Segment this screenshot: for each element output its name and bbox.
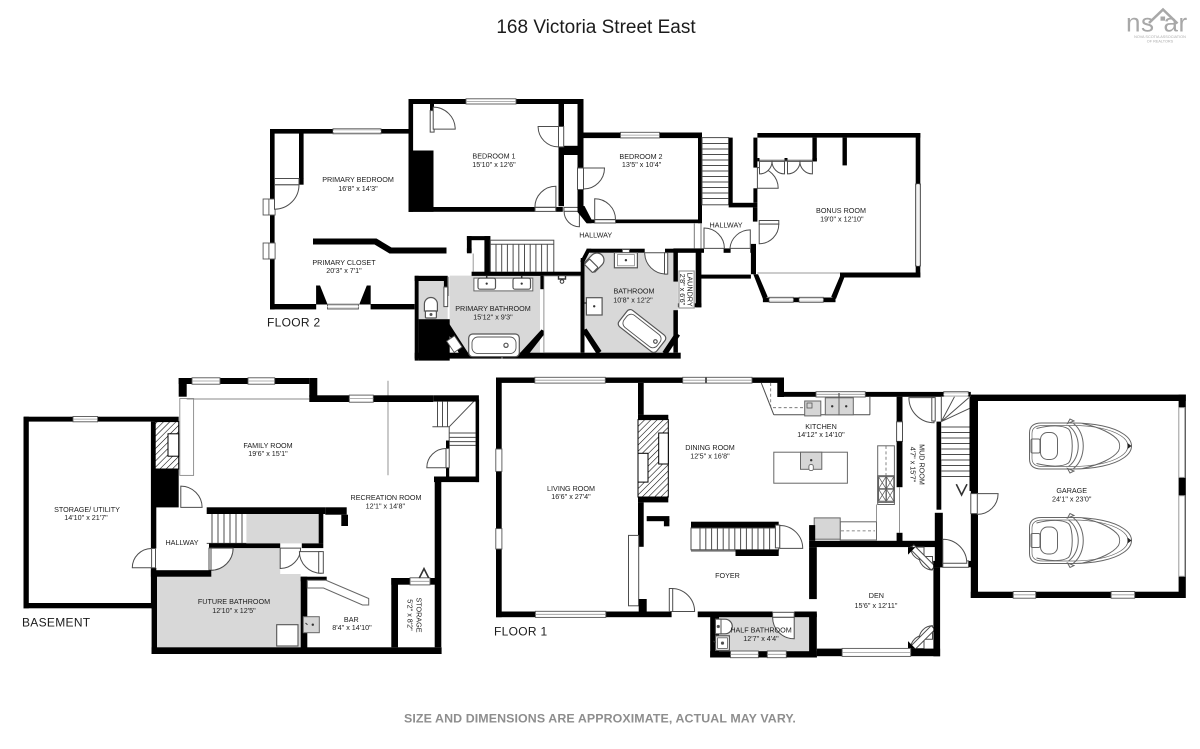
svg-text:HALLWAY: HALLWAY — [165, 538, 198, 547]
svg-text:20'3" x 7'1": 20'3" x 7'1" — [326, 266, 362, 275]
svg-text:STORAGE: STORAGE — [415, 597, 424, 632]
svg-text:FOYER: FOYER — [715, 571, 740, 580]
svg-text:19'0" x 12'10": 19'0" x 12'10" — [820, 215, 864, 224]
svg-text:10'8" x 12'2": 10'8" x 12'2" — [613, 296, 653, 305]
svg-text:4'7" x 15'7": 4'7" x 15'7" — [909, 447, 918, 483]
svg-text:15'6" x 12'11": 15'6" x 12'11" — [855, 601, 898, 610]
svg-text:PRIMARY BEDROOM: PRIMARY BEDROOM — [322, 175, 394, 184]
svg-text:FLOOR 1: FLOOR 1 — [494, 625, 547, 639]
svg-text:14'10" x 21'7": 14'10" x 21'7" — [64, 513, 108, 522]
svg-text:SIZE AND DIMENSIONS ARE APPROX: SIZE AND DIMENSIONS ARE APPROXIMATE, ACT… — [404, 712, 796, 726]
svg-text:12'5" x 16'8": 12'5" x 16'8" — [690, 452, 730, 461]
svg-text:HALLWAY: HALLWAY — [579, 231, 612, 240]
svg-text:12'1" x 14'8": 12'1" x 14'8" — [366, 502, 406, 511]
svg-text:12'10" x 12'5": 12'10" x 12'5" — [212, 606, 256, 615]
svg-text:24'1" x 23'0": 24'1" x 23'0" — [1052, 495, 1092, 504]
svg-text:168 Victoria Street East: 168 Victoria Street East — [496, 17, 696, 38]
svg-text:DEN: DEN — [869, 591, 884, 600]
svg-text:HALLWAY: HALLWAY — [709, 221, 742, 230]
svg-text:16'6" x 27'4": 16'6" x 27'4" — [551, 492, 591, 501]
svg-text:FUTURE BATHROOM: FUTURE BATHROOM — [198, 597, 270, 606]
svg-text:15'10" x 12'6": 15'10" x 12'6" — [472, 160, 516, 169]
svg-text:BASEMENT: BASEMENT — [22, 616, 91, 630]
svg-text:19'6" x 15'1": 19'6" x 15'1" — [248, 449, 288, 458]
svg-text:2'8" x 6'6": 2'8" x 6'6" — [678, 274, 687, 306]
svg-text:FLOOR 2: FLOOR 2 — [267, 316, 320, 330]
svg-text:MUD ROOM: MUD ROOM — [918, 444, 927, 485]
svg-text:BATHROOM: BATHROOM — [614, 287, 655, 296]
svg-text:OF REALTORS: OF REALTORS — [1147, 40, 1174, 44]
svg-text:14'12" x 14'10": 14'12" x 14'10" — [797, 430, 845, 439]
svg-text:5'2" x 8'2": 5'2" x 8'2" — [406, 599, 415, 631]
svg-text:12'7" x 4'4": 12'7" x 4'4" — [743, 634, 779, 643]
svg-text:NOVA SCOTIA ASSOCIATION: NOVA SCOTIA ASSOCIATION — [1134, 35, 1186, 39]
svg-text:13'5" x 10'4": 13'5" x 10'4" — [622, 160, 662, 169]
svg-text:16'8" x 14'3": 16'8" x 14'3" — [338, 184, 378, 193]
svg-text:15'12" x 9'3": 15'12" x 9'3" — [473, 313, 513, 322]
svg-text:8'4" x 14'10": 8'4" x 14'10" — [332, 623, 372, 632]
